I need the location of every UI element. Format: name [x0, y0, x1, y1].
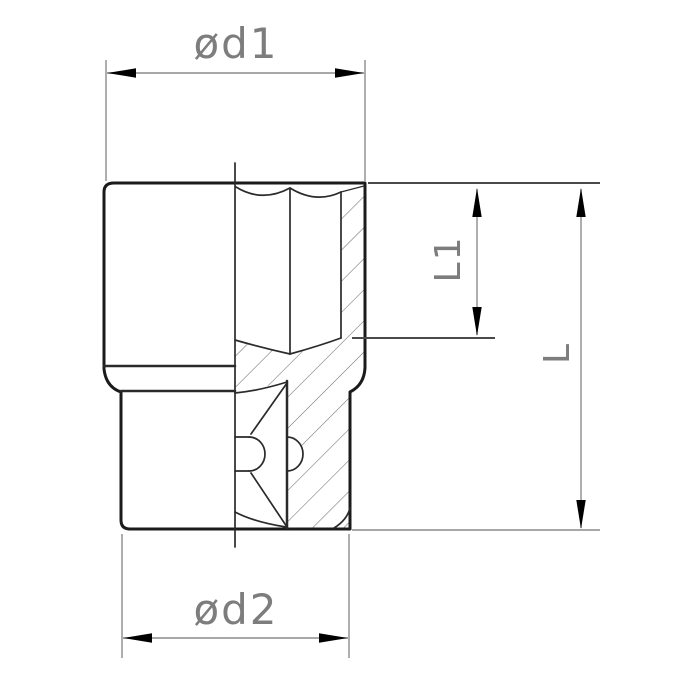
- ball-detent-arc: [249, 437, 265, 471]
- section-hatching: [235, 186, 365, 528]
- d2-label: ød2: [193, 585, 278, 634]
- dimension-d2: ød2: [122, 534, 349, 658]
- hex-chamfer-arc: [236, 187, 290, 195]
- arrowhead-down: [472, 307, 481, 336]
- d1-label: ød1: [193, 19, 278, 68]
- arrowhead-up: [472, 188, 481, 217]
- arrowhead-up: [576, 188, 585, 217]
- arrowhead-right: [335, 68, 364, 77]
- l-label: L: [537, 342, 578, 364]
- drawing-canvas: ød1 ød2 L1 L: [0, 0, 700, 700]
- hex-chamfer-arc: [290, 188, 341, 197]
- arrowhead-left: [107, 68, 136, 77]
- technical-drawing-svg: ød1 ød2 L1 L: [0, 0, 700, 700]
- arrowhead-left: [123, 633, 152, 642]
- dimension-l1: L1: [352, 183, 600, 338]
- dimension-d1: ød1: [106, 19, 365, 181]
- arrowhead-down: [576, 500, 585, 529]
- arrowhead-right: [319, 633, 348, 642]
- drive-chamfer-diagonal: [251, 473, 287, 527]
- l1-label: L1: [428, 236, 469, 283]
- dimension-l: L: [352, 188, 600, 530]
